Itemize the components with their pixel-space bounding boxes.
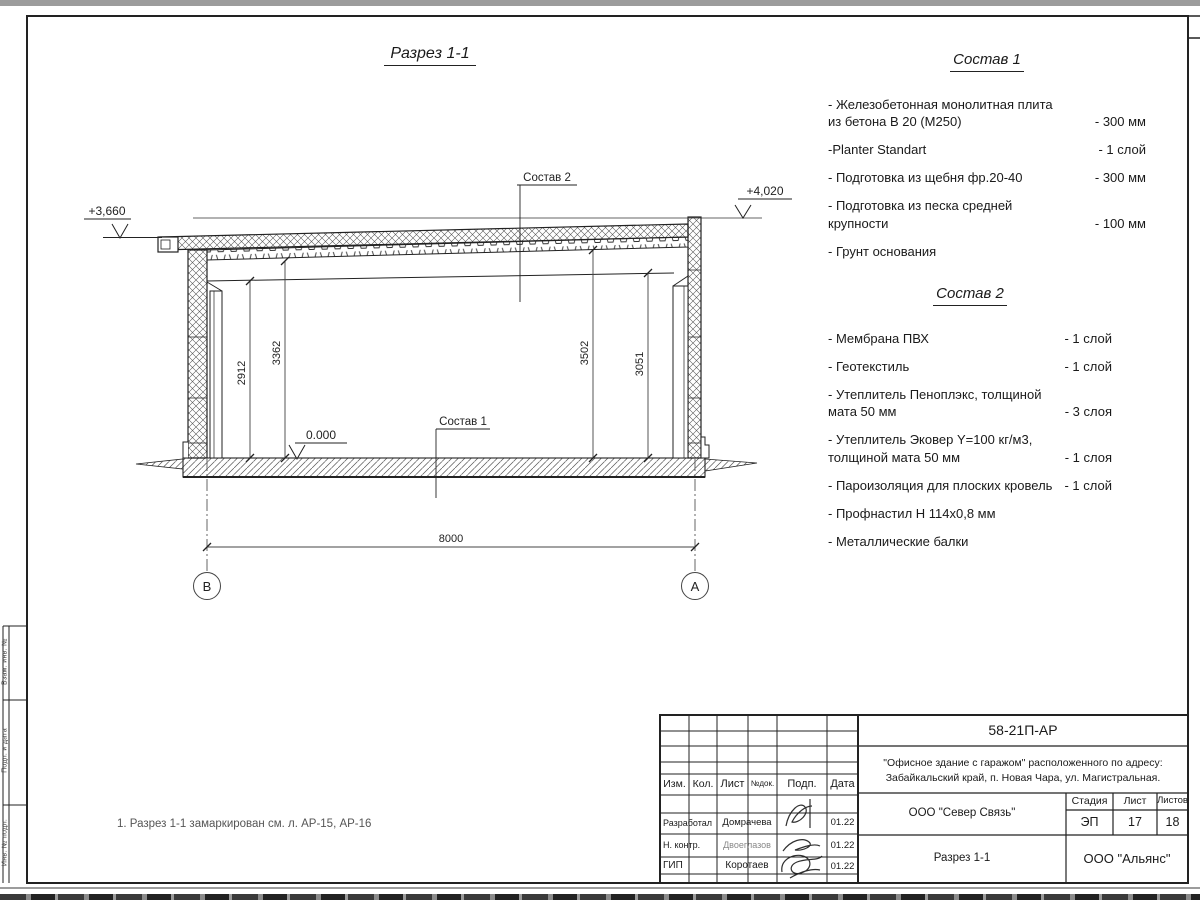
sostav2-callout-label: Состав 2: [523, 172, 571, 184]
axis-right-bubble-label: А: [691, 579, 700, 594]
sheet-label: Лист: [1113, 793, 1157, 810]
col-header-list: Лист: [717, 774, 748, 795]
elevation-zero-label: 0.000: [306, 428, 336, 442]
row-gip-date: 01.22: [827, 859, 858, 876]
row-gip-role: ГИП: [661, 857, 717, 874]
list-item: - Профнастил Н 114х0,8 мм: [828, 505, 1112, 522]
project-description: "Офисное здание с гаражом" расположенног…: [862, 750, 1184, 792]
dim-3362-label: 3362: [271, 341, 283, 365]
dim-3051-label: 3051: [634, 352, 646, 376]
row-ncontrol-name: Двоеглазов: [717, 836, 777, 855]
list-item: - Подготовка из песка средней крупности …: [828, 197, 1146, 231]
sostav2-list: Состав 2 - Мембрана ПВХ - 1 слой - Геоте…: [828, 284, 1112, 561]
list-item: - Подготовка из щебня фр.20-40 - 300 мм: [828, 169, 1146, 186]
col-header-podp: Подп.: [777, 774, 827, 795]
sheets-total-value: 18: [1157, 810, 1188, 835]
list-item: - Утеплитель Эковер Y=100 кг/м3, толщино…: [828, 431, 1112, 465]
margin-stamp-label: Взам. инв. №: [2, 632, 9, 692]
list-item: - Геотекстиль - 1 слой: [828, 358, 1112, 375]
drawing-sheet: +3,660 +4,020 0.000 Состав 2 Состав 1 29…: [0, 0, 1200, 900]
titleblock-sheet-title: Разрез 1-1: [858, 835, 1066, 883]
sostav1-title: Состав 1: [828, 50, 1146, 72]
margin-stamp-label: Инв. № подл.: [2, 813, 9, 873]
view-title: Разрез 1-1: [330, 45, 530, 66]
stage-value: ЭП: [1066, 810, 1113, 835]
margin-stamp-label: Подп. и дата: [2, 721, 9, 781]
sostav1-callout-label: Состав 1: [439, 416, 487, 428]
sheet-number-value: 17: [1113, 810, 1157, 835]
axis-lines: [194, 459, 709, 600]
list-item: - Железобетонная монолитная плита из бет…: [828, 96, 1146, 130]
doc-number: 58-21П-АР: [858, 717, 1188, 744]
sheets-label: Листов: [1157, 793, 1188, 810]
list-item: - Мембрана ПВХ - 1 слой: [828, 330, 1112, 347]
elevation-right-label: +4,020: [746, 184, 783, 198]
sheet-note: 1. Разрез 1-1 замаркирован см. л. АР-15,…: [117, 818, 371, 830]
row-gip-name: Коротаев: [717, 857, 777, 874]
stage-label: Стадия: [1066, 793, 1113, 810]
list-item: - Утеплитель Пеноплэкс, толщиной мата 50…: [828, 386, 1112, 420]
col-header-izm: Изм.: [660, 774, 689, 795]
sostav2-title: Состав 2: [828, 284, 1112, 306]
signature-marks: [782, 799, 822, 878]
col-header-kol: Кол.: [689, 774, 717, 795]
axis-left-bubble-label: В: [203, 579, 212, 594]
span-dim-label: 8000: [439, 533, 463, 545]
row-developed-role: Разработал: [661, 813, 717, 834]
col-header-data: Дата: [827, 774, 858, 795]
row-developed-date: 01.22: [827, 813, 858, 834]
sostav1-list: Состав 1 - Железобетонная монолитная пли…: [828, 50, 1146, 271]
col-header-ndok: №док.: [748, 774, 777, 795]
row-ncontrol-date: 01.22: [827, 838, 858, 855]
list-item: - Металлические балки: [828, 533, 1112, 550]
contractor-name: ООО "Север Связь": [858, 795, 1066, 833]
list-item: - Грунт основания: [828, 243, 1146, 260]
list-item: -Planter Standart - 1 слой: [828, 141, 1146, 158]
row-developed-name: Домрачева: [717, 813, 777, 834]
list-item: - Пароизоляция для плоских кровель - 1 с…: [828, 477, 1112, 494]
dim-3502-label: 3502: [579, 341, 591, 365]
row-ncontrol-role: Н. контр.: [661, 836, 717, 855]
dim-2912-label: 2912: [236, 361, 248, 385]
elevation-left-label: +3,660: [88, 204, 125, 218]
building-section: [136, 217, 762, 477]
organization-name: ООО "Альянс": [1066, 835, 1188, 883]
